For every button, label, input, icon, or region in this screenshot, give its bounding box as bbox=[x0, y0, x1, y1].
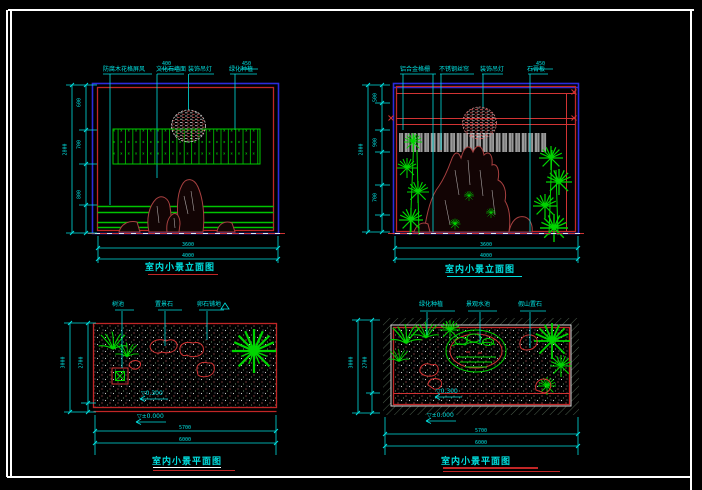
bl-bottom-dim-1: 5700 bbox=[165, 426, 205, 431]
bl-dimension-bottom bbox=[93, 415, 278, 455]
br-level-note-1: ▽0.300 bbox=[436, 389, 458, 395]
tr-left-dim-overall: 2800 bbox=[360, 139, 365, 161]
tl-left-dim-seg3: 800 bbox=[78, 184, 83, 206]
bl-level-note-1: ▽0.300 bbox=[141, 391, 163, 397]
tr-left-dim-seg2: 900 bbox=[374, 132, 379, 154]
tl-pendant-lamp-icon bbox=[172, 110, 206, 142]
tr-elevation-view bbox=[362, 69, 584, 263]
tl-left-dim-seg2: 700 bbox=[78, 134, 83, 156]
tr-view-title: 室内小景立面图 bbox=[425, 266, 535, 275]
cad-linework bbox=[0, 0, 702, 490]
br-title-underline-thin bbox=[443, 471, 560, 472]
tr-pendant-lamp-icon bbox=[463, 107, 497, 139]
tl-title-underline bbox=[148, 274, 218, 275]
bl-label-pebble: 卵石铺地 bbox=[197, 302, 221, 308]
br-bottom-dim-1: 5700 bbox=[461, 429, 501, 434]
bl-label-rock: 置景石 bbox=[155, 302, 173, 308]
tr-rockery bbox=[414, 146, 532, 232]
tr-label-dim-1: 450 bbox=[536, 62, 545, 67]
cad-drawing-canvas: 防腐木花格屏风 文化石墙面 装饰吊灯 绿化种植 400 450 3600 400… bbox=[0, 0, 702, 490]
bl-level-note-2: ▽±0.000 bbox=[137, 414, 164, 420]
br-label-rockery: 假山置石 bbox=[518, 302, 542, 308]
tl-label-wall: 文化石墙面 bbox=[156, 67, 186, 73]
tr-bottom-dim-1: 3600 bbox=[466, 243, 506, 248]
br-left-dim-seg1: 2700 bbox=[364, 352, 369, 374]
br-left-dim-overall: 3000 bbox=[350, 352, 355, 374]
tl-label-dim-2: 450 bbox=[242, 62, 251, 67]
br-title-underline-red bbox=[443, 467, 538, 469]
tr-label-lamp: 装饰吊灯 bbox=[480, 67, 504, 73]
tl-label-dim-1: 400 bbox=[162, 62, 171, 67]
bl-left-dim-seg1: 2700 bbox=[80, 352, 85, 374]
bl-plan-view bbox=[64, 303, 278, 455]
tr-title-underline bbox=[447, 276, 522, 277]
tr-left-dim-seg3: 700 bbox=[374, 187, 379, 209]
tr-label-ceiling: 石膏板 bbox=[527, 67, 545, 73]
br-level-note-2: ▽±0.000 bbox=[427, 413, 454, 419]
tr-left-dim-seg1: 500 bbox=[374, 87, 379, 109]
br-label-pond: 景观水池 bbox=[466, 302, 490, 308]
bl-label-planter: 树池 bbox=[112, 302, 124, 308]
br-bottom-dim-2: 6000 bbox=[461, 441, 501, 446]
br-label-plants: 绿化种植 bbox=[419, 302, 443, 308]
tr-bottom-dim-2: 4000 bbox=[466, 254, 506, 259]
tl-elevation-view bbox=[66, 69, 285, 263]
tr-label-grille: 铝合金格栅 bbox=[400, 67, 430, 73]
tl-bottom-dim-2: 4000 bbox=[168, 254, 208, 259]
br-dimension-bottom bbox=[383, 417, 580, 455]
tl-label-lattice: 防腐木花格屏风 bbox=[103, 67, 145, 73]
tl-bottom-dim-1: 3600 bbox=[168, 243, 208, 248]
bl-view-title: 室内小景平面图 bbox=[132, 458, 242, 467]
bl-title-underline-white bbox=[153, 467, 221, 468]
tl-label-plant: 绿化种植 bbox=[229, 67, 253, 73]
tl-view-title: 室内小景立面图 bbox=[125, 264, 235, 273]
tl-rocks bbox=[119, 180, 235, 232]
tr-label-curtain: 不锈钢丝帘 bbox=[439, 67, 469, 73]
tl-label-lamp: 装饰吊灯 bbox=[188, 67, 212, 73]
br-view-title: 室内小景平面图 bbox=[421, 458, 531, 467]
bl-left-dim-overall: 3000 bbox=[62, 352, 67, 374]
bl-bottom-dim-2: 6000 bbox=[165, 438, 205, 443]
bl-title-underline-red bbox=[153, 470, 235, 471]
tl-left-dim-seg1: 600 bbox=[78, 92, 83, 114]
tl-left-dim-overall: 2800 bbox=[64, 139, 69, 161]
